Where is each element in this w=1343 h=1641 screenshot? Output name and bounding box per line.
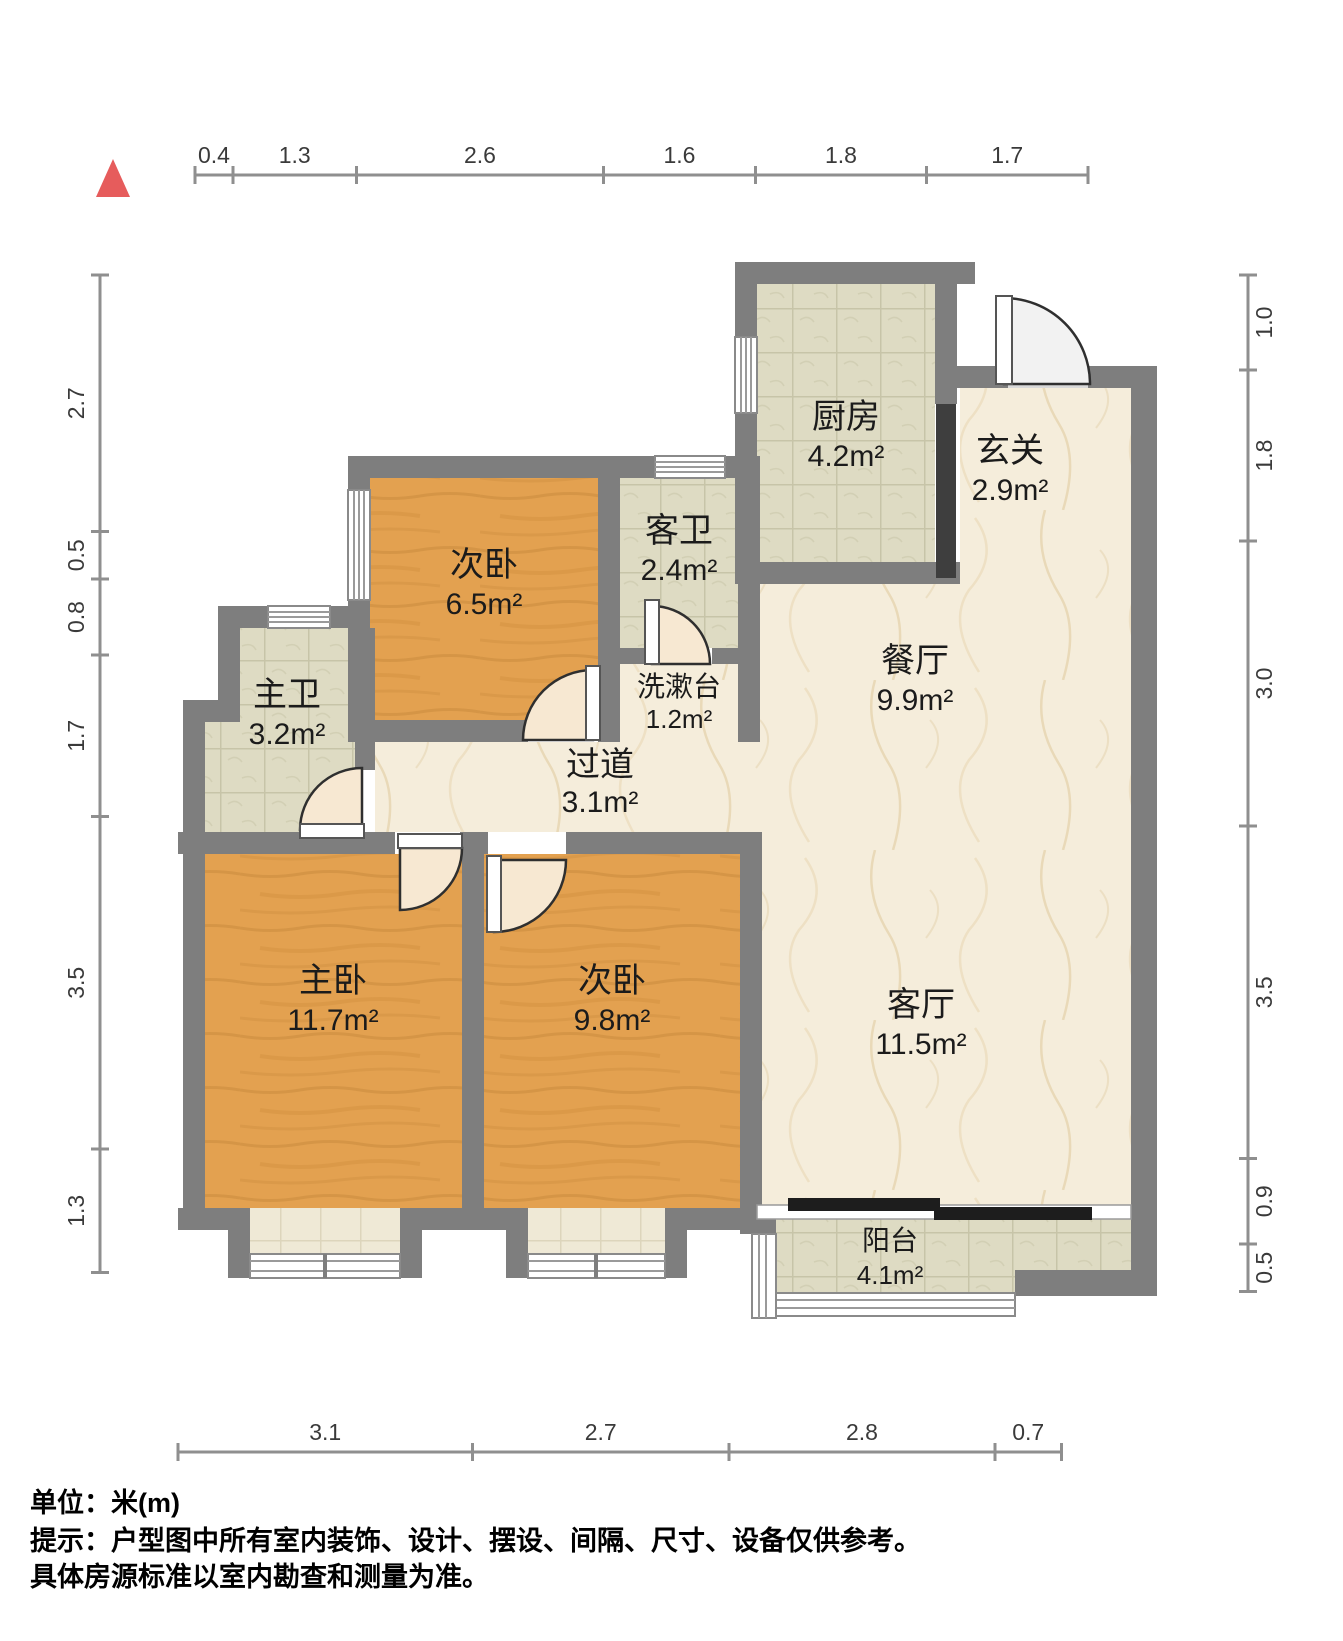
footer-tip: 提示：户型图中所有室内装饰、设计、摆设、间隔、尺寸、设备仅供参考。 xyxy=(30,1525,921,1556)
dim-value: 0.5 xyxy=(1251,1252,1277,1284)
footer-unit: 单位：米(m) xyxy=(30,1487,180,1518)
dim-value: 0.4 xyxy=(198,142,230,168)
master-bedroom-bay-sill xyxy=(250,1208,400,1254)
dining-label: 餐厅 xyxy=(881,642,949,680)
footer-note: 单位：米(m) 提示：户型图中所有室内装饰、设计、摆设、间隔、尺寸、设备仅供参考… xyxy=(30,1487,921,1592)
hallway-area: 3.1m² xyxy=(562,786,639,819)
dim-value: 1.8 xyxy=(825,142,857,168)
balcony-left-window xyxy=(752,1234,776,1318)
bedroom-south-area: 9.8m² xyxy=(574,1004,651,1037)
foyer-label: 玄关 xyxy=(976,432,1044,470)
dim-value: 3.5 xyxy=(63,967,89,999)
floorplan-canvas: 厨房 4.2m² 玄关 2.9m² 客卫 2.4m² 次卧 6.5m² 洗漱台 … xyxy=(0,0,1343,1641)
living-area: 11.5m² xyxy=(875,1028,966,1061)
foyer-area: 2.9m² xyxy=(972,474,1049,507)
balcony-label: 阳台 xyxy=(862,1225,918,1256)
dim-value: 3.5 xyxy=(1251,976,1277,1008)
kitchen-area: 4.2m² xyxy=(808,440,885,473)
master-bath-window xyxy=(268,606,330,628)
kitchen-window xyxy=(735,337,757,413)
bedroom-north-window xyxy=(348,490,370,600)
dim-value: 0.9 xyxy=(1251,1185,1277,1217)
master-bedroom-area: 11.7m² xyxy=(287,1004,378,1037)
master-bath-label: 主卫 xyxy=(253,676,321,714)
dim-value: 1.7 xyxy=(991,142,1023,168)
master-bedroom-label: 主卧 xyxy=(299,962,367,1000)
dim-value: 1.8 xyxy=(1251,440,1277,472)
bedroom-south-label: 次卧 xyxy=(578,962,646,1000)
dim-value: 0.7 xyxy=(1012,1419,1044,1445)
guest-bath-label: 客卫 xyxy=(645,512,713,550)
dim-value: 0.5 xyxy=(63,539,89,571)
kitchen-foyer-dark-divider xyxy=(936,404,956,578)
bedroom-north-area: 6.5m² xyxy=(446,588,523,621)
balcony-area: 4.1m² xyxy=(857,1260,924,1290)
hallway-label: 过道 xyxy=(566,746,634,784)
master-bedroom-bay-window xyxy=(250,1254,400,1278)
kitchen-label: 厨房 xyxy=(812,398,880,436)
guest-bath-area: 2.4m² xyxy=(641,554,718,587)
dim-value: 1.7 xyxy=(63,720,89,752)
dim-value: 3.1 xyxy=(309,1419,341,1445)
dim-value: 2.7 xyxy=(63,387,89,419)
dim-value: 1.6 xyxy=(664,142,696,168)
wash-area-area: 1.2m² xyxy=(646,704,713,734)
balcony-bottom-window xyxy=(772,1293,1015,1316)
dim-value: 2.6 xyxy=(464,142,496,168)
entry-door xyxy=(996,296,1090,384)
footer-tip2: 具体房源标准以室内勘查和测量为准。 xyxy=(30,1561,489,1592)
floorplan-page: 厨房 4.2m² 玄关 2.9m² 客卫 2.4m² 次卧 6.5m² 洗漱台 … xyxy=(0,0,1343,1641)
bedroom-south-bay-window xyxy=(528,1254,665,1278)
dim-value: 1.0 xyxy=(1251,307,1277,339)
living-label: 客厅 xyxy=(887,986,955,1024)
master-bath-area: 3.2m² xyxy=(249,718,326,751)
dim-value: 0.8 xyxy=(63,601,89,633)
dim-value: 1.3 xyxy=(63,1195,89,1227)
wash-area-label: 洗漱台 xyxy=(637,671,721,702)
guest-bath-window xyxy=(655,456,725,478)
dim-value: 2.8 xyxy=(846,1419,878,1445)
dining-area: 9.9m² xyxy=(877,684,954,717)
bedroom-south-bay-sill xyxy=(528,1208,665,1254)
north-marker-icon xyxy=(96,159,130,197)
dim-value: 1.3 xyxy=(279,142,311,168)
dim-value: 3.0 xyxy=(1251,668,1277,700)
bedroom-north-label: 次卧 xyxy=(450,546,518,584)
dim-value: 2.7 xyxy=(585,1419,617,1445)
